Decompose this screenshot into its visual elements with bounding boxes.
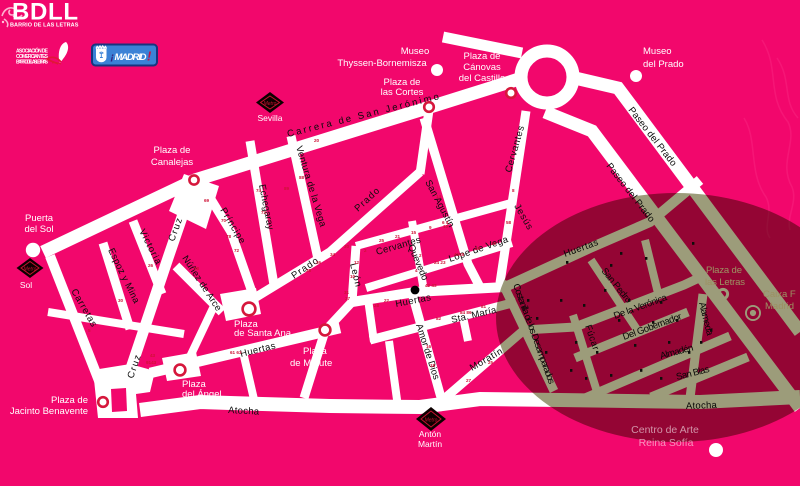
svg-text:del Prado: del Prado [643,59,684,70]
svg-text:24 23: 24 23 [434,260,446,265]
svg-text:27: 27 [466,378,472,383]
svg-text:2: 2 [419,253,422,258]
svg-text:78: 78 [226,234,232,239]
svg-text:36: 36 [316,260,322,265]
svg-text:43: 43 [150,353,156,358]
svg-text:Centro de Arte: Centro de Arte [631,424,699,436]
svg-text:37: 37 [345,296,351,301]
svg-text:Metro: Metro [264,101,277,107]
svg-text:30: 30 [118,298,124,303]
svg-text:de Santa Ana: de Santa Ana [234,328,292,339]
svg-text:Metro: Metro [24,267,37,273]
svg-text:Plaza de: Plaza de [464,51,501,62]
svg-text:70: 70 [221,218,227,223]
svg-text:9: 9 [429,225,432,230]
svg-text:16: 16 [426,344,432,349]
svg-text:Antón: Antón [419,429,441,439]
svg-text:Reina Sofía: Reina Sofía [639,437,694,449]
svg-text:30: 30 [344,244,350,249]
svg-text:MADRID: MADRID [115,52,147,63]
svg-text:Atocha: Atocha [228,405,260,418]
svg-text:!: ! [147,49,152,64]
svg-text:Sevilla: Sevilla [257,113,282,123]
svg-text:14: 14 [436,194,442,199]
svg-text:10: 10 [350,274,356,279]
svg-text:18: 18 [430,363,436,368]
svg-text:Metro: Metro [425,418,438,424]
svg-text:del Ángel: del Ángel [182,389,222,400]
svg-text:81: 81 [481,304,487,309]
svg-text:del Sol: del Sol [24,224,53,235]
svg-text:28: 28 [374,303,380,308]
svg-text:22: 22 [384,298,390,303]
svg-text:Puerta: Puerta [25,213,54,224]
svg-text:4645: 4645 [454,252,465,257]
svg-text:20: 20 [314,138,320,143]
svg-text:31: 31 [344,290,350,295]
svg-text:74: 74 [256,188,262,193]
svg-text:88: 88 [299,175,305,180]
svg-text:16: 16 [491,241,497,246]
svg-text:9143: 9143 [146,360,157,365]
svg-text:Plaza de: Plaza de [51,395,88,406]
svg-text:82: 82 [436,316,442,321]
svg-text:72: 72 [234,248,240,253]
svg-text:Plaza de: Plaza de [154,145,191,156]
svg-text:58: 58 [506,220,512,225]
svg-text:26: 26 [148,263,154,268]
svg-text:8: 8 [512,188,515,193]
svg-text:42 43: 42 43 [425,283,437,288]
svg-text:Museo: Museo [643,46,672,57]
svg-text:BARRIO DE LAS LETRAS: BARRIO DE LAS LETRAS [10,23,79,29]
svg-text:25: 25 [488,360,494,365]
svg-text:Plaza: Plaza [303,346,327,357]
svg-text:34: 34 [330,252,336,257]
svg-text:Thyssen-Bornemisza: Thyssen-Bornemisza [337,58,427,69]
svg-text:12: 12 [354,260,360,265]
svg-text:25: 25 [379,238,385,243]
svg-text:Cánovas: Cánovas [463,62,501,73]
svg-text:Martín: Martín [418,439,442,449]
svg-text:Jacinto Benavente: Jacinto Benavente [10,406,88,417]
svg-text:38: 38 [306,268,312,273]
svg-text:15: 15 [411,230,417,235]
svg-text:73: 73 [261,210,267,215]
svg-text:las Cortes: las Cortes [381,87,424,98]
svg-text:61 63: 61 63 [230,350,242,355]
svg-text:10: 10 [443,224,449,229]
svg-text:58: 58 [194,266,200,271]
svg-text:del Castillo: del Castillo [459,73,505,84]
svg-text:2: 2 [364,248,367,253]
svg-text:18: 18 [475,246,481,251]
svg-text:5: 5 [88,328,91,333]
svg-text:Museo: Museo [401,46,430,57]
svg-text:84 86: 84 86 [460,310,472,315]
svg-text:4: 4 [415,268,418,273]
svg-text:BARRIO DE LAS LETRAS: BARRIO DE LAS LETRAS [16,60,49,66]
svg-text:Sol: Sol [20,280,32,290]
svg-text:89: 89 [284,186,290,191]
svg-text:de Matute: de Matute [290,358,332,369]
svg-text:Canalejas: Canalejas [151,157,193,168]
svg-text:21: 21 [395,234,401,239]
svg-text:69: 69 [204,198,210,203]
